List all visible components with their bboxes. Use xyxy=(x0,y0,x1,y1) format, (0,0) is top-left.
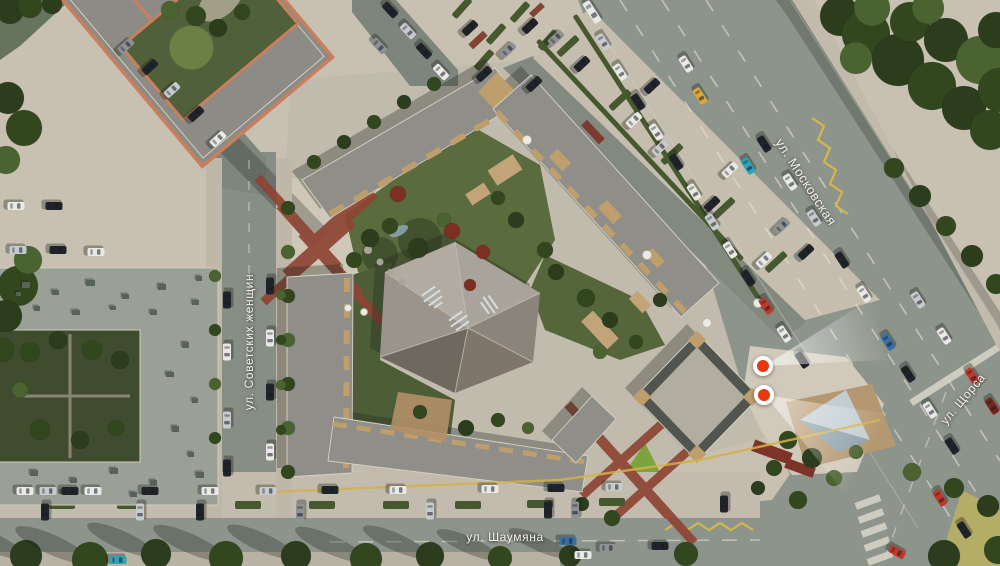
tree xyxy=(604,510,620,526)
roof-unit xyxy=(70,478,77,483)
hedge xyxy=(383,501,409,509)
car xyxy=(196,500,207,521)
car xyxy=(544,482,565,493)
car xyxy=(198,485,219,496)
tree xyxy=(390,186,406,202)
hedge xyxy=(599,498,625,506)
hedge xyxy=(455,501,481,509)
tree xyxy=(464,279,476,291)
tree xyxy=(537,242,553,258)
car xyxy=(266,380,277,401)
car xyxy=(6,244,27,255)
tree xyxy=(766,460,782,476)
car xyxy=(720,492,731,513)
car xyxy=(41,500,52,521)
roof-unit xyxy=(16,292,21,296)
tree xyxy=(548,264,564,280)
car xyxy=(544,498,555,519)
street-label-shaumyana: ул. Шаумяна xyxy=(466,531,543,543)
roof-unit xyxy=(22,282,30,288)
car xyxy=(84,246,105,257)
tree xyxy=(276,425,286,435)
roof-unit xyxy=(34,306,40,311)
roof-unit xyxy=(52,290,59,295)
tree xyxy=(209,324,221,336)
car xyxy=(42,200,63,211)
tree xyxy=(209,378,221,390)
tree xyxy=(903,463,921,481)
tree xyxy=(49,331,67,349)
tree xyxy=(276,290,286,300)
roof-unit xyxy=(30,470,38,476)
tree xyxy=(961,245,983,267)
tree xyxy=(6,110,42,146)
car xyxy=(648,540,669,551)
car xyxy=(571,549,592,560)
tree xyxy=(161,1,179,19)
roof-unit xyxy=(72,310,80,315)
car xyxy=(296,500,307,521)
tree xyxy=(209,19,227,37)
viewpoint-marker-1[interactable] xyxy=(753,356,773,376)
roof-unit xyxy=(158,284,166,290)
roof-unit xyxy=(166,372,174,377)
roof-unit xyxy=(182,342,189,348)
car xyxy=(136,500,147,521)
tree xyxy=(413,405,427,419)
car xyxy=(266,440,277,461)
tree xyxy=(108,420,124,436)
tree xyxy=(209,432,221,444)
tree xyxy=(281,201,295,215)
car xyxy=(426,499,437,520)
tree xyxy=(491,191,505,205)
site-plan-map: ул. Советских женщин ул. Московская ул. … xyxy=(0,0,1000,566)
tree xyxy=(361,229,379,247)
tree xyxy=(508,212,524,228)
tree xyxy=(186,6,206,26)
car xyxy=(478,483,499,494)
roof-unit xyxy=(130,492,137,497)
hedge xyxy=(309,501,335,509)
tree xyxy=(416,542,444,566)
tree xyxy=(840,42,872,74)
car xyxy=(223,408,234,429)
roof-unit xyxy=(86,280,95,286)
tree xyxy=(234,4,250,20)
tree xyxy=(674,542,698,566)
tree xyxy=(209,270,221,282)
tree xyxy=(337,135,351,149)
tree xyxy=(629,335,643,349)
tree xyxy=(936,216,956,236)
tree xyxy=(458,420,474,436)
car xyxy=(602,481,623,492)
tree xyxy=(30,420,50,440)
tree xyxy=(82,340,102,360)
car xyxy=(266,274,277,295)
tree xyxy=(397,95,411,109)
car xyxy=(223,456,234,477)
roof-unit xyxy=(196,276,202,281)
tree xyxy=(977,495,999,517)
car xyxy=(223,340,234,361)
tree xyxy=(111,351,129,369)
tree xyxy=(789,491,807,509)
roof-unit xyxy=(192,398,198,403)
tree xyxy=(382,218,398,234)
tree xyxy=(276,335,286,345)
roof-unit xyxy=(122,294,129,299)
car xyxy=(223,288,234,309)
roof-unit xyxy=(188,452,194,457)
tree xyxy=(12,382,28,398)
car xyxy=(556,535,577,546)
car xyxy=(571,498,582,519)
tree xyxy=(141,539,171,566)
viewpoint-marker-2[interactable] xyxy=(754,385,774,405)
tree xyxy=(367,115,381,129)
tree xyxy=(346,252,362,268)
tree xyxy=(653,293,667,307)
car xyxy=(106,554,127,565)
roof-unit xyxy=(192,300,199,305)
car xyxy=(46,244,67,255)
tree xyxy=(909,185,931,207)
car xyxy=(81,485,102,496)
tree xyxy=(281,465,295,479)
tree xyxy=(444,223,460,239)
street-label-sovetskikh: ул. Советских женщин xyxy=(243,274,255,410)
car xyxy=(58,485,79,496)
tree xyxy=(602,312,618,328)
tree xyxy=(476,245,490,259)
car xyxy=(138,485,159,496)
car xyxy=(13,485,34,496)
tree xyxy=(276,380,286,390)
car xyxy=(256,485,277,496)
site-plan-canvas xyxy=(0,0,1000,566)
roof-unit xyxy=(110,306,116,310)
roof-unit xyxy=(196,472,204,478)
car xyxy=(266,326,277,347)
tree xyxy=(20,342,40,362)
car xyxy=(318,484,339,495)
tree xyxy=(593,345,607,359)
car xyxy=(596,542,617,553)
tree xyxy=(71,431,89,449)
tree xyxy=(884,158,904,178)
tree xyxy=(577,289,595,307)
roof-unit xyxy=(110,468,118,474)
car xyxy=(4,200,25,211)
car xyxy=(386,484,407,495)
car xyxy=(36,485,57,496)
tree xyxy=(944,478,964,498)
tree xyxy=(751,481,765,495)
tree xyxy=(408,238,428,258)
roof-unit xyxy=(150,480,157,485)
tree xyxy=(491,413,505,427)
hedge xyxy=(235,501,261,509)
tree xyxy=(307,155,321,169)
tree xyxy=(522,422,534,434)
tree xyxy=(427,77,441,91)
tree xyxy=(281,245,295,259)
roof-unit xyxy=(150,310,157,315)
roof-unit xyxy=(172,426,179,432)
